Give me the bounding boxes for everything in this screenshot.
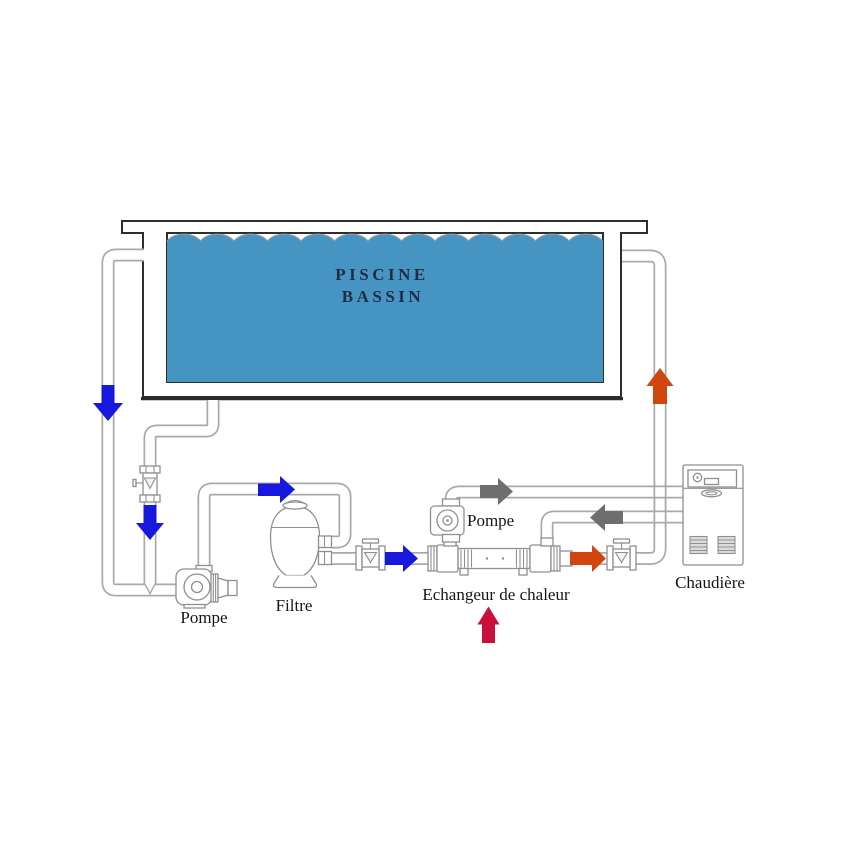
circulator-top-flange — [443, 499, 460, 506]
boiler-gauge-needle — [696, 476, 698, 478]
pool-tank: PISCINE BASSIN — [122, 221, 647, 399]
exchanger-dot-2 — [502, 557, 504, 559]
valve-heated-return-left-flange — [607, 546, 613, 570]
check-valve-top-coupling — [140, 466, 160, 473]
flow-arrow-primary-supply-right — [480, 478, 513, 505]
exchanger-shell — [458, 549, 530, 569]
exchanger-dot-1 — [486, 557, 488, 559]
circulator-pump: Pompe — [431, 499, 515, 542]
boiler: Chaudière — [675, 465, 745, 592]
pool-heating-diagram: PISCINE BASSIN — [0, 0, 850, 850]
exchanger-left-ring — [428, 546, 437, 571]
check-valve-stem — [133, 480, 136, 487]
flow-arrow-filter-to-exchanger-right — [385, 545, 418, 572]
valve-filter-outlet-handle — [363, 539, 379, 543]
flow-arrow-heat-input-up — [478, 607, 500, 644]
main-pump: Pompe — [176, 566, 237, 628]
main-pump-hub — [192, 582, 203, 593]
boiler-handle — [702, 490, 722, 497]
flow-arrow-heated-up — [647, 368, 674, 404]
flow-arrow-primary-return-left — [590, 504, 623, 531]
diagram-canvas: PISCINE BASSIN — [0, 0, 850, 850]
check-valve-bottom-coupling — [140, 495, 160, 502]
flow-arrow-drain-down — [136, 505, 164, 540]
boiler-grille-right — [718, 537, 735, 554]
main-pump-label: Pompe — [180, 608, 227, 627]
exchanger-left-tab — [460, 569, 468, 576]
heat-exchanger-label: Echangeur de chaleur — [422, 585, 570, 604]
pool-label-line1: PISCINE — [335, 265, 428, 284]
valve-filter-outlet-left-flange — [356, 546, 362, 570]
heat-exchanger: Echangeur de chaleur — [422, 538, 572, 604]
main-pump-flange-ring — [211, 574, 218, 602]
valve-heated-return — [607, 539, 636, 570]
circulator-bottom-flange — [443, 535, 460, 543]
boiler-display — [705, 479, 719, 485]
exchanger-right-tee — [530, 545, 551, 572]
filter-foot — [274, 576, 317, 588]
filter-body — [271, 507, 320, 576]
circulator-pump-label: Pompe — [467, 511, 514, 530]
flow-arrow-heated-right — [570, 545, 606, 572]
exchanger-right-branch — [541, 538, 553, 546]
exchanger-left-tee — [437, 545, 458, 572]
flow-arrow-pump-to-filter-right — [258, 476, 295, 503]
filter-label: Filtre — [276, 596, 313, 615]
flow-arrow-pool-return-down — [93, 385, 123, 421]
boiler-grille-left — [690, 537, 707, 554]
check-valve — [133, 466, 160, 502]
filter-vessel: Filtre — [271, 501, 332, 616]
boiler-label: Chaudière — [675, 573, 745, 592]
circulator-center-dot — [446, 519, 449, 522]
main-pump-outlet-cone — [218, 578, 228, 598]
valve-heated-return-handle — [614, 539, 630, 543]
pool-water — [167, 234, 603, 382]
valve-heated-return-right-flange — [630, 546, 636, 570]
pool-label-line2: BASSIN — [342, 287, 424, 306]
valve-filter-outlet — [356, 539, 385, 570]
exchanger-right-tab — [519, 569, 527, 576]
exchanger-right-ring — [551, 546, 560, 571]
main-pump-outlet-cap — [228, 581, 237, 596]
valve-filter-outlet-right-flange — [379, 546, 385, 570]
